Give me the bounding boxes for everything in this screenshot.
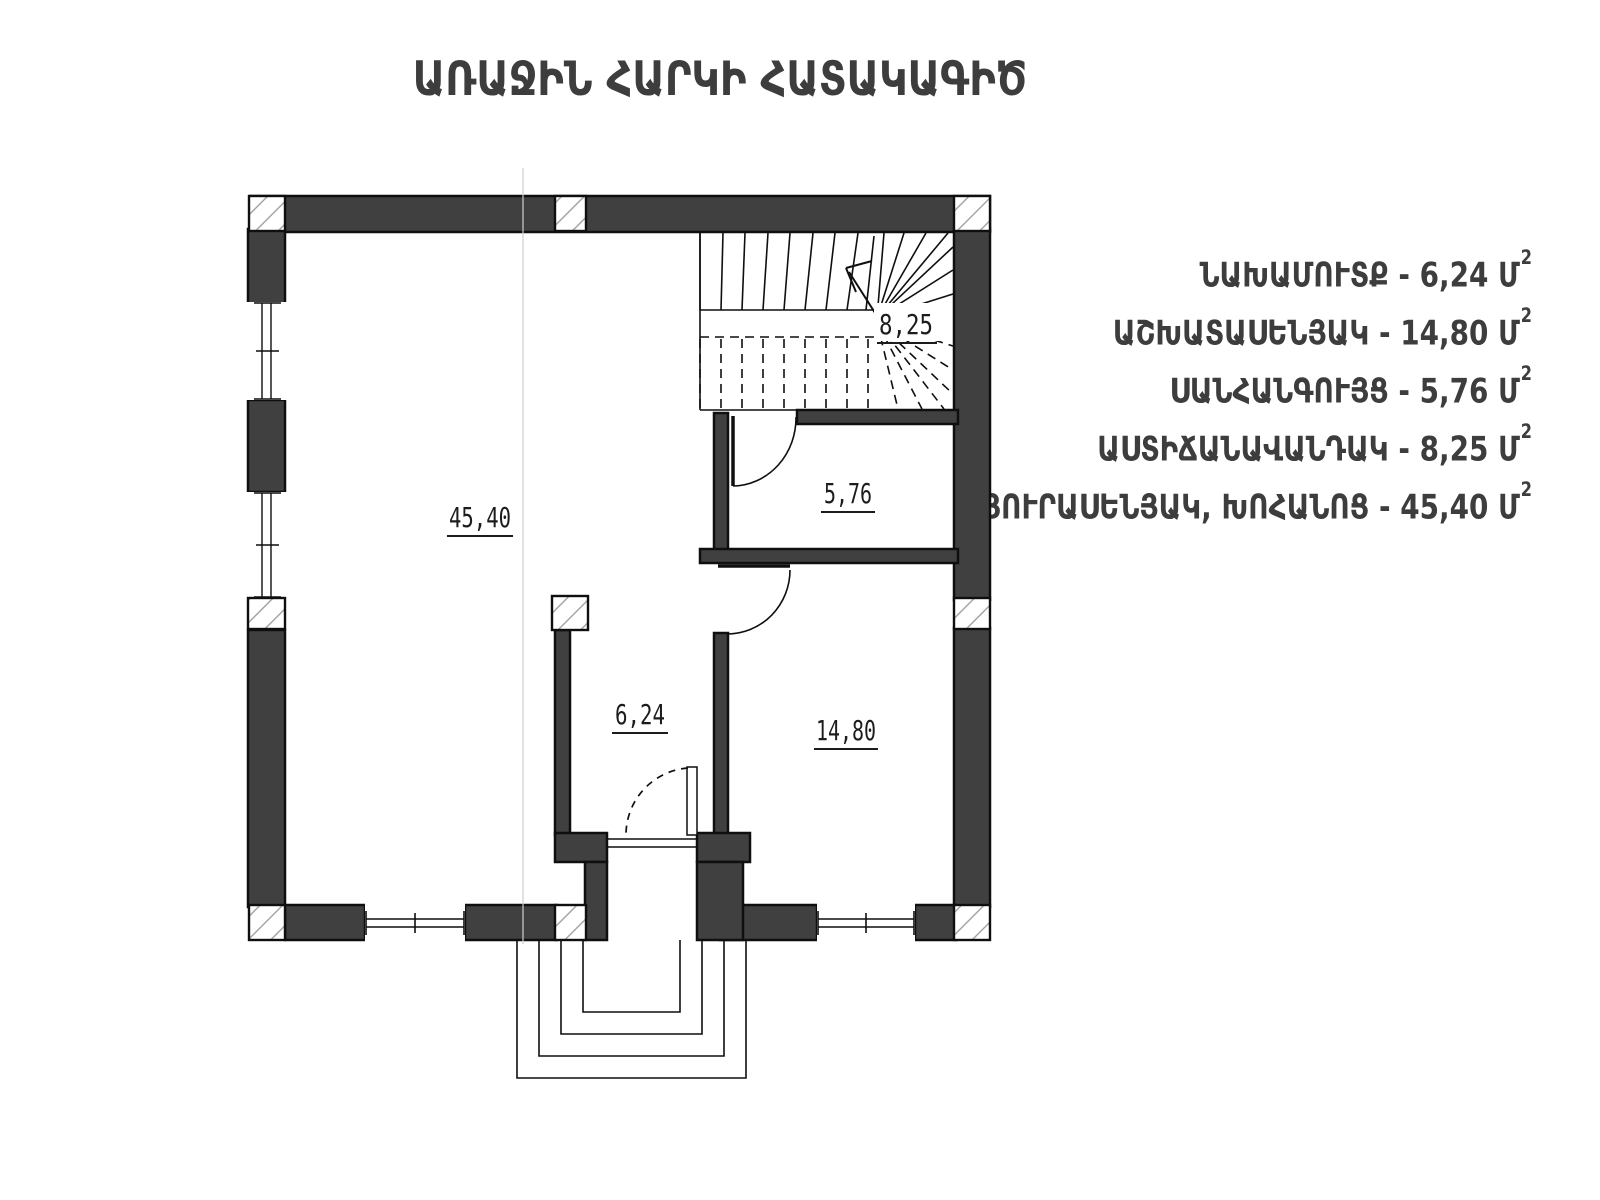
doors (607, 416, 796, 851)
room-labels: 45,40 5,76 6,24 14,80 8,25 (447, 308, 937, 749)
room-label-staircase: 8,25 (879, 308, 933, 341)
room-label-bathroom: 5,76 (824, 477, 872, 510)
floor-plan: 45,40 5,76 6,24 14,80 8,25 (0, 0, 1600, 1200)
interior-walls (555, 410, 958, 940)
porch-steps (517, 940, 746, 1078)
room-label-entrance-hall: 6,24 (615, 698, 665, 731)
room-label-living-kitchen: 45,40 (449, 501, 511, 534)
room-label-workroom: 14,80 (816, 714, 876, 747)
